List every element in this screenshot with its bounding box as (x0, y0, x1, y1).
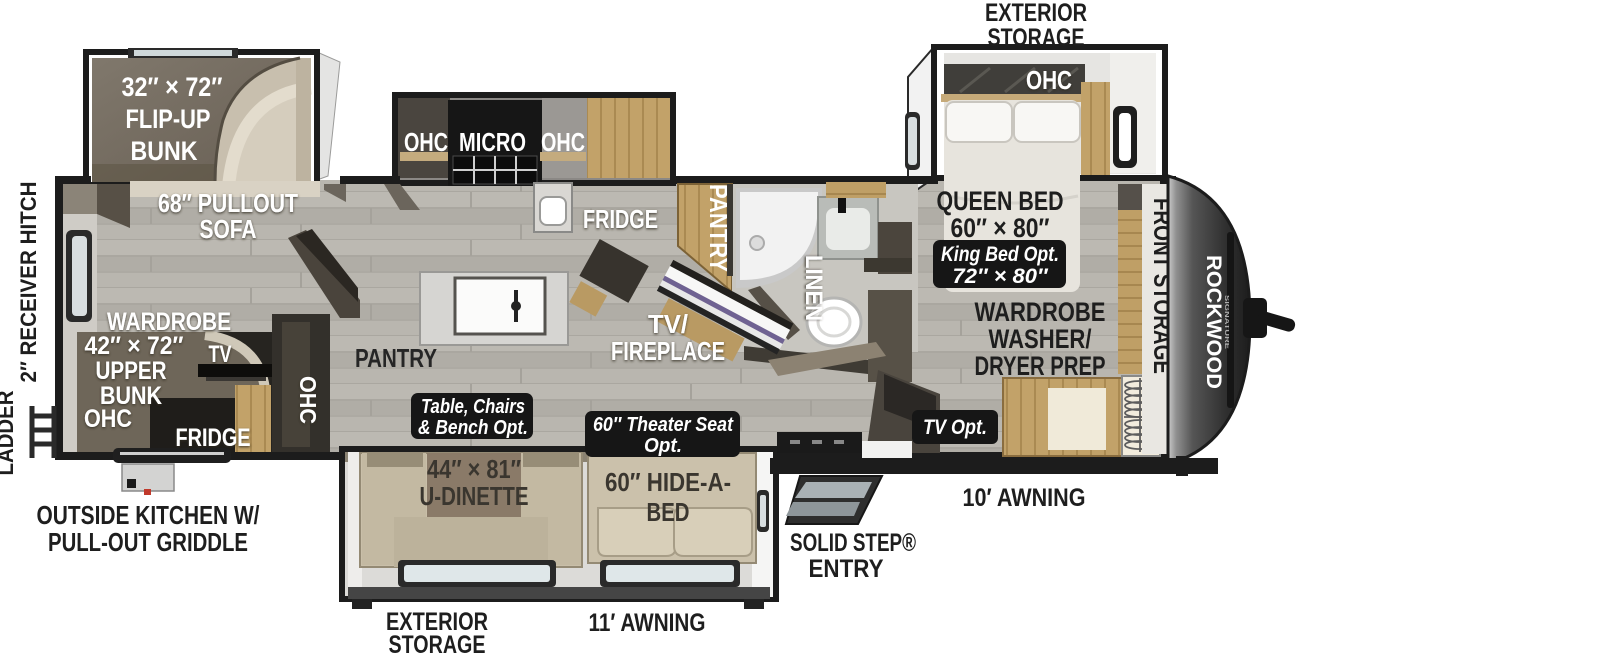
svg-text:Table, Chairs: Table, Chairs (421, 396, 525, 418)
svg-text:TV: TV (209, 341, 232, 368)
svg-text:10′ AWNING: 10′ AWNING (963, 484, 1086, 512)
svg-text:TV Opt.: TV Opt. (923, 416, 987, 439)
svg-text:& Bench Opt.: & Bench Opt. (418, 417, 528, 439)
svg-text:OHC: OHC (541, 127, 585, 157)
svg-text:EXTERIOR: EXTERIOR (985, 0, 1087, 27)
svg-text:U-DINETTE: U-DINETTE (420, 481, 529, 511)
svg-text:ROCKWOOD: ROCKWOOD (1202, 255, 1225, 389)
svg-text:OHC: OHC (84, 405, 132, 433)
svg-text:LADDER: LADDER (0, 390, 18, 475)
svg-text:2″ RECEIVER HITCH: 2″ RECEIVER HITCH (16, 182, 41, 383)
svg-text:60″ Theater Seat: 60″ Theater Seat (593, 414, 734, 436)
svg-text:STORAGE: STORAGE (389, 631, 486, 655)
svg-text:LINEN: LINEN (800, 255, 827, 321)
svg-text:QUEEN BED: QUEEN BED (937, 186, 1064, 216)
svg-text:PULL-OUT GRIDDLE: PULL-OUT GRIDDLE (48, 527, 248, 557)
svg-text:OHC: OHC (1026, 65, 1072, 95)
svg-text:BUNK: BUNK (131, 136, 198, 166)
svg-text:PANTRY: PANTRY (355, 343, 437, 373)
svg-text:FRIDGE: FRIDGE (176, 424, 251, 452)
svg-text:FIREPLACE: FIREPLACE (611, 336, 725, 366)
svg-text:SIGNATURE: SIGNATURE (1223, 295, 1229, 349)
svg-text:FLIP-UP: FLIP-UP (126, 104, 211, 134)
svg-text:FRIDGE: FRIDGE (583, 204, 658, 234)
svg-text:King Bed Opt.: King Bed Opt. (941, 243, 1059, 266)
svg-text:UPPER: UPPER (96, 357, 167, 385)
svg-text:OUTSIDE KITCHEN W/: OUTSIDE KITCHEN W/ (37, 500, 260, 530)
svg-text:TV/: TV/ (648, 309, 688, 339)
svg-text:OHC: OHC (295, 376, 321, 424)
svg-text:60″ × 80″: 60″ × 80″ (951, 213, 1050, 243)
svg-text:WASHER/: WASHER/ (989, 324, 1092, 354)
svg-text:DRYER PREP: DRYER PREP (975, 351, 1106, 381)
svg-text:STORAGE: STORAGE (988, 24, 1085, 52)
svg-text:WARDROBE: WARDROBE (975, 297, 1106, 327)
svg-text:11′ AWNING: 11′ AWNING (589, 609, 706, 637)
svg-text:ENTRY: ENTRY (809, 555, 884, 583)
svg-text:Opt.: Opt. (644, 435, 682, 457)
svg-text:60″ HIDE-A-: 60″ HIDE-A- (605, 467, 731, 497)
svg-text:MICRO: MICRO (459, 127, 526, 157)
svg-text:72″ × 80″: 72″ × 80″ (953, 265, 1049, 288)
svg-text:42″ × 72″: 42″ × 72″ (85, 332, 184, 360)
svg-text:BED: BED (647, 497, 690, 527)
svg-text:32″ × 72″: 32″ × 72″ (122, 72, 223, 102)
svg-text:OHC: OHC (404, 127, 448, 157)
svg-text:SOLID STEP®: SOLID STEP® (790, 529, 916, 557)
svg-text:SOFA: SOFA (200, 214, 257, 244)
svg-text:44″ × 81″: 44″ × 81″ (427, 454, 521, 484)
